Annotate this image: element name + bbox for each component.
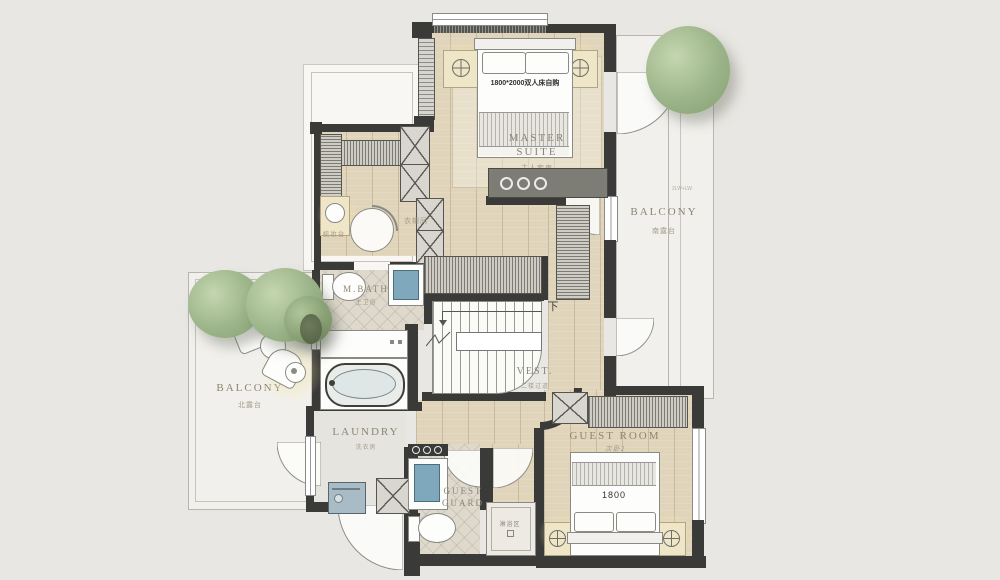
room-sublabel-balcony-south: 南露台 (618, 226, 710, 236)
door-arc-vest-balcony (616, 318, 654, 356)
room-label-mbath: M.BATH (322, 284, 410, 295)
washer-door-icon (334, 494, 343, 503)
stairs-down-label: 下 (545, 301, 561, 315)
vanity-dot (390, 340, 394, 344)
wall (692, 390, 704, 430)
guest-bed-label: 1800 (588, 490, 640, 501)
wall (424, 293, 544, 301)
wall (692, 520, 704, 568)
cabinet-x (400, 164, 430, 202)
room-label-guard1: GUEST (430, 486, 496, 497)
cabinet-x (400, 126, 430, 166)
shower-label: 淋浴区 (486, 519, 534, 528)
wall (608, 386, 704, 395)
stairs-break-icon (426, 330, 452, 352)
bathtub-inner (332, 369, 396, 399)
wall (536, 556, 706, 568)
window-guest-room (692, 428, 706, 524)
pillow (616, 512, 656, 532)
window-vest (604, 196, 618, 242)
wall (604, 356, 616, 396)
lamp-icon (663, 530, 680, 547)
wall (314, 262, 354, 270)
washer-detail (332, 488, 360, 490)
room-sublabel-mbath: 主卫浴 (322, 297, 410, 306)
lamp-dot-icon (291, 368, 297, 374)
pillow (525, 52, 569, 74)
room-label-laundry: LAUNDRY (318, 426, 414, 440)
spotlights-icon (412, 446, 442, 454)
guest-bed-headboard (567, 532, 663, 544)
stair-rail (456, 332, 542, 351)
shower-inner-line (491, 507, 531, 551)
stool-icon (325, 203, 345, 223)
corridor-floor (416, 400, 548, 448)
cabinet-x (416, 198, 444, 232)
room-sublabel-laundry: 洗衣房 (318, 442, 414, 451)
pillow (574, 512, 614, 532)
wardrobe-hatch (556, 205, 590, 300)
lamp-icon (452, 59, 470, 77)
console-knobs-icon (500, 177, 547, 190)
wardrobe-hatch (424, 256, 542, 294)
vanity-dot (398, 340, 402, 344)
room-label-balcony-south: BALCONY (618, 206, 710, 220)
lamp-icon (571, 59, 589, 77)
window-master-left (418, 38, 435, 120)
window-top (432, 13, 548, 26)
shrub-icon (300, 314, 322, 344)
room-label-master: MASTER SUITE (490, 132, 584, 160)
cabinet-x (552, 392, 588, 424)
drain-icon (507, 530, 514, 537)
guest-bed-blanket (572, 462, 656, 486)
room-label-guest: GUEST ROOM (560, 430, 670, 444)
master-bed-label: 1800*2000双人床自购 (479, 80, 571, 89)
tree-icon (646, 26, 730, 114)
room-label-vest: VEST. (500, 366, 570, 379)
tub-faucet-icon (329, 380, 335, 386)
cabinet-x (376, 478, 410, 514)
pillow (482, 52, 526, 74)
balcony-note: 2LW+LW (672, 186, 712, 192)
guest-wardrobe-hatch (588, 396, 688, 428)
closet-label: 衣帽间 (392, 216, 440, 226)
guard-toilet-icon (418, 513, 456, 543)
window-laundry (305, 436, 316, 496)
door-arc-lower-entry (338, 505, 403, 570)
wall (604, 240, 616, 318)
lamp-icon (549, 530, 566, 547)
wardrobe-hatch (320, 134, 342, 198)
wall-corner (412, 22, 432, 38)
room-sublabel-vest: 二楼过道 (500, 381, 570, 390)
floor-plan: 1800*2000双人床自购 MASTER SUITE 主人套房 梳妆台 衣帽间… (0, 0, 1000, 580)
dressing-table-label: 梳妆台 (312, 228, 356, 238)
master-bed-headboard (474, 38, 576, 50)
stairs-arrowhead-icon (439, 320, 447, 326)
door-arc-guest-guard (444, 450, 481, 487)
bath-vanity (320, 330, 408, 358)
door-arc-guest-room (493, 448, 533, 488)
stairs-direction-line (442, 311, 542, 312)
